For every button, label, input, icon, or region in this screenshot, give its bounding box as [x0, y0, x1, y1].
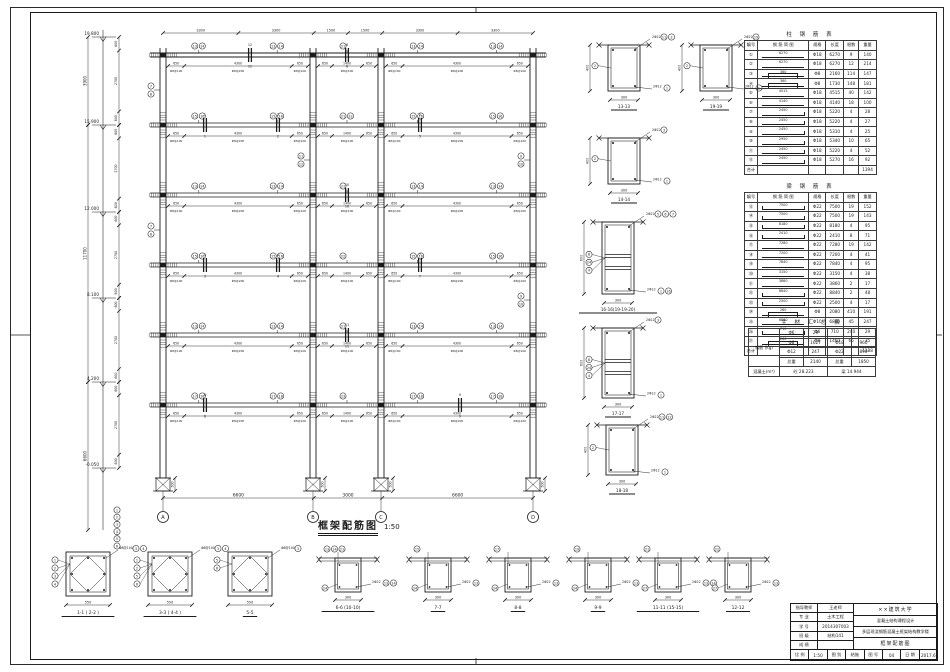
svg-text:5: 5 [657, 212, 659, 216]
svg-text:24: 24 [587, 261, 591, 265]
svg-text:300: 300 [615, 299, 621, 303]
svg-text:2: 2 [594, 157, 596, 161]
svg-text:27: 27 [713, 586, 717, 590]
svg-text:21: 21 [341, 114, 345, 118]
title-block-cell: 2017.6 [920, 650, 937, 660]
svg-text:4: 4 [142, 547, 144, 551]
svg-text:17: 17 [411, 394, 415, 398]
svg-text:5: 5 [136, 574, 138, 578]
svg-text:2Φ22: 2Φ22 [646, 212, 655, 216]
svg-text:13: 13 [325, 547, 329, 551]
title-block-bottom-row: 比 例1:50图 别结施图 号04日 期2017.6 [791, 649, 937, 660]
svg-text:11: 11 [345, 345, 349, 349]
svg-text:650: 650 [391, 272, 397, 276]
svg-text:6: 6 [116, 544, 118, 548]
svg-text:300: 300 [595, 596, 601, 600]
svg-text:Φ8@100: Φ8@100 [341, 209, 354, 213]
svg-text:Φ8@100: Φ8@100 [388, 349, 401, 353]
svg-text:4300: 4300 [453, 342, 461, 346]
svg-text:Φ8@100: Φ8@100 [513, 209, 526, 213]
rebar-row: ③360Φ82160114147 [745, 69, 877, 79]
svg-text:2Φ12: 2Φ12 [647, 392, 656, 396]
school-name: ××建筑大学 [854, 604, 937, 616]
svg-text:14: 14 [279, 324, 283, 328]
svg-text:23: 23 [341, 394, 345, 398]
svg-text:2: 2 [594, 64, 596, 68]
svg-text:Φ8@200: Φ8@200 [232, 279, 245, 283]
svg-text:4300: 4300 [234, 202, 242, 206]
svg-text:600: 600 [114, 301, 118, 307]
svg-text:1-1 ( 2-2 ): 1-1 ( 2-2 ) [77, 610, 99, 616]
svg-text:7: 7 [419, 253, 421, 257]
svg-text:Φ8@200: Φ8@200 [451, 139, 464, 143]
svg-text:8-8: 8-8 [514, 605, 521, 611]
svg-text:650: 650 [297, 202, 303, 206]
title-block-row: 专 业土木工程 [791, 613, 853, 622]
svg-text:650: 650 [366, 272, 372, 276]
svg-text:-0.050: -0.050 [86, 462, 100, 467]
rebar-row: ⑲7840Φ227840495 [745, 260, 877, 270]
rebar-row: ⑭7500Φ22750019143 [745, 212, 877, 222]
rebar-row: ㉔260Φ82080410191 [745, 308, 877, 318]
svg-text:Φ8@100: Φ8@100 [513, 279, 526, 283]
svg-text:13: 13 [554, 581, 558, 585]
rebar-row: ⑤4515Φ18451540142 [745, 88, 877, 98]
column-rebar-table: 柱 钢 筋 表编号钢 筋 简 图规格长度根数重量①6270Φ1862709140… [744, 30, 877, 175]
svg-text:600: 600 [114, 458, 118, 464]
svg-text:3: 3 [116, 523, 118, 527]
svg-text:12: 12 [299, 162, 303, 166]
svg-text:Φ8@200: Φ8@200 [232, 139, 245, 143]
svg-text:2: 2 [592, 446, 594, 450]
svg-text:600: 600 [579, 255, 583, 261]
svg-text:8.100: 8.100 [87, 292, 99, 297]
svg-text:Φ8@100: Φ8@100 [201, 546, 215, 550]
concrete-row: 混凝土(m³)砼 28.223梁 14.944 [749, 367, 876, 377]
svg-text:6600: 6600 [233, 493, 244, 499]
drawing-sheet: 500A500B500C500D660030006600330033001500… [0, 0, 950, 672]
svg-text:Φ8@200: Φ8@200 [451, 279, 464, 283]
svg-text:13: 13 [491, 184, 495, 188]
svg-text:16: 16 [279, 254, 283, 258]
svg-text:4300: 4300 [234, 62, 242, 66]
svg-text:9: 9 [459, 415, 461, 419]
svg-text:24: 24 [587, 366, 591, 370]
svg-text:650: 650 [391, 62, 397, 66]
svg-text:650: 650 [391, 342, 397, 346]
svg-text:13: 13 [271, 184, 275, 188]
svg-text:13: 13 [271, 44, 275, 48]
rebar-row: ㉑3860Φ223860217 [745, 279, 877, 289]
svg-text:2700: 2700 [114, 164, 118, 172]
svg-text:7-7: 7-7 [434, 605, 441, 611]
svg-text:400: 400 [585, 65, 589, 71]
rebar-row: ⑥4140Φ18414018100 [745, 98, 877, 108]
svg-text:Φ8@200: Φ8@200 [232, 419, 245, 423]
svg-text:15: 15 [193, 254, 197, 258]
svg-text:Φ8@100: Φ8@100 [513, 139, 526, 143]
svg-text:300: 300 [621, 189, 627, 193]
svg-text:16-16(19-19-20): 16-16(19-19-20) [601, 307, 636, 312]
svg-text:2Φ22: 2Φ22 [542, 580, 551, 584]
svg-text:6600: 6600 [452, 493, 463, 499]
svg-text:6: 6 [346, 43, 348, 47]
svg-text:2700: 2700 [114, 251, 118, 259]
svg-text:1: 1 [204, 135, 206, 139]
svg-text:12-12: 12-12 [732, 605, 745, 611]
svg-text:3-3 ( 4-4 ): 3-3 ( 4-4 ) [159, 610, 181, 616]
svg-text:1: 1 [204, 113, 206, 117]
drawing-title-text: 框架配筋图 [318, 517, 378, 536]
svg-text:9: 9 [520, 294, 522, 298]
svg-text:4300: 4300 [453, 272, 461, 276]
svg-text:15.900: 15.900 [84, 119, 99, 124]
svg-text:650: 650 [366, 62, 372, 66]
svg-text:2: 2 [277, 113, 279, 117]
svg-text:14: 14 [498, 324, 502, 328]
svg-text:1400: 1400 [343, 272, 351, 276]
svg-text:Φ8@100: Φ8@100 [341, 419, 354, 423]
svg-text:17-17: 17-17 [612, 411, 625, 416]
svg-text:Φ8@200: Φ8@200 [451, 349, 464, 353]
rebar-row: ⑫2450Φ1852701692 [745, 156, 877, 166]
svg-text:650: 650 [366, 202, 372, 206]
table-title: 柱 钢 筋 表 [744, 30, 877, 38]
svg-text:Φ8@200: Φ8@200 [451, 419, 464, 423]
svg-text:14: 14 [391, 581, 395, 585]
svg-text:13: 13 [193, 44, 197, 48]
svg-text:300: 300 [515, 596, 521, 600]
svg-text:A: A [161, 515, 165, 521]
svg-text:2Φ12: 2Φ12 [651, 469, 660, 473]
svg-text:650: 650 [517, 272, 523, 276]
svg-text:7: 7 [150, 84, 152, 88]
svg-text:650: 650 [297, 412, 303, 416]
svg-text:11: 11 [345, 323, 349, 327]
summary-row: 钢筋 (kg)Φ629 [749, 329, 876, 339]
svg-text:18: 18 [279, 394, 283, 398]
svg-text:3300: 3300 [272, 29, 281, 33]
svg-text:1: 1 [660, 393, 662, 397]
svg-text:8: 8 [588, 253, 590, 257]
svg-text:5: 5 [216, 558, 218, 562]
svg-text:4300: 4300 [453, 202, 461, 206]
svg-text:15: 15 [411, 254, 415, 258]
svg-text:6600: 6600 [82, 450, 87, 461]
rebar-row: ⑱7200Φ227200441 [745, 250, 877, 260]
svg-text:16: 16 [498, 254, 502, 258]
svg-text:10: 10 [519, 302, 523, 306]
svg-text:Φ8@100: Φ8@100 [388, 139, 401, 143]
svg-text:650: 650 [322, 412, 328, 416]
svg-text:14-14: 14-14 [618, 197, 631, 202]
svg-text:650: 650 [517, 62, 523, 66]
svg-text:650: 650 [173, 272, 179, 276]
svg-text:15: 15 [193, 114, 197, 118]
svg-text:13: 13 [634, 581, 638, 585]
course-name: 混凝土结构课程设计 [854, 616, 937, 627]
rebar-row: ⑩2950Φ1853401065 [745, 136, 877, 146]
svg-text:19.800: 19.800 [84, 31, 99, 36]
svg-text:11: 11 [299, 154, 303, 158]
svg-text:600: 600 [114, 216, 118, 222]
svg-text:Φ8@100: Φ8@100 [294, 349, 307, 353]
svg-text:650: 650 [322, 62, 328, 66]
svg-text:2700: 2700 [114, 336, 118, 344]
svg-text:650: 650 [322, 132, 328, 136]
svg-text:650: 650 [366, 342, 372, 346]
svg-text:650: 650 [391, 132, 397, 136]
svg-text:14: 14 [279, 44, 283, 48]
svg-text:8: 8 [204, 393, 206, 397]
svg-text:7: 7 [672, 212, 674, 216]
title-block-cell: 结施 [846, 650, 864, 660]
svg-text:2Φ12: 2Φ12 [647, 288, 656, 292]
svg-text:650: 650 [173, 132, 179, 136]
svg-text:4300: 4300 [453, 62, 461, 66]
svg-text:16: 16 [498, 114, 502, 118]
svg-text:12: 12 [248, 65, 252, 69]
svg-text:10: 10 [519, 162, 523, 166]
svg-text:3: 3 [217, 547, 219, 551]
svg-text:10: 10 [345, 205, 349, 209]
rebar-row: ⑳3150Φ223150438 [745, 269, 877, 279]
svg-text:Φ8@100: Φ8@100 [170, 139, 183, 143]
svg-text:2Φ12: 2Φ12 [653, 85, 662, 89]
svg-text:2Φ22: 2Φ22 [646, 318, 655, 322]
svg-text:2Φ22: 2Φ22 [652, 128, 661, 132]
svg-text:3900: 3900 [82, 75, 87, 86]
svg-text:2: 2 [116, 516, 118, 520]
svg-text:Φ8@200: Φ8@200 [451, 69, 464, 73]
svg-text:21: 21 [341, 44, 345, 48]
svg-text:17: 17 [193, 394, 197, 398]
svg-text:11: 11 [662, 35, 666, 39]
svg-text:8: 8 [150, 232, 152, 236]
svg-text:7: 7 [150, 224, 152, 228]
svg-text:14: 14 [498, 44, 502, 48]
svg-text:19: 19 [575, 547, 579, 551]
drawing-scale: 1:50 [384, 523, 400, 531]
svg-text:Φ8@100: Φ8@100 [170, 69, 183, 73]
svg-text:2Φ22: 2Φ22 [692, 580, 701, 584]
svg-text:2Φ22: 2Φ22 [622, 580, 631, 584]
svg-text:550: 550 [85, 601, 91, 605]
svg-text:6: 6 [136, 582, 138, 586]
title-block: 指导教师王老师专 业土木工程学 号2014307003班 级结构141成 绩 ×… [790, 603, 938, 661]
svg-text:14: 14 [332, 547, 336, 551]
svg-text:400: 400 [583, 447, 587, 453]
svg-text:Φ8@100: Φ8@100 [170, 209, 183, 213]
title-block-row: 班 级结构141 [791, 632, 853, 641]
svg-text:6-6 (10-10): 6-6 (10-10) [336, 605, 361, 611]
svg-text:1: 1 [116, 508, 118, 512]
svg-text:550: 550 [167, 601, 173, 605]
svg-text:27: 27 [643, 586, 647, 590]
svg-text:300: 300 [435, 596, 441, 600]
svg-text:650: 650 [322, 342, 328, 346]
svg-text:650: 650 [517, 202, 523, 206]
svg-text:24: 24 [323, 586, 327, 590]
svg-text:24: 24 [493, 586, 497, 590]
svg-text:650: 650 [297, 342, 303, 346]
svg-text:Φ8@100: Φ8@100 [294, 209, 307, 213]
title-block-cell: 04 [883, 650, 901, 660]
svg-text:Φ8@100: Φ8@100 [170, 349, 183, 353]
title-block-row: 学 号2014307003 [791, 622, 853, 631]
svg-text:4: 4 [588, 374, 590, 378]
rebar-row: ⑮8180Φ228180495 [745, 221, 877, 231]
svg-text:Φ8@100: Φ8@100 [119, 546, 133, 550]
svg-text:1500: 1500 [327, 29, 336, 33]
svg-text:650: 650 [173, 342, 179, 346]
svg-text:18: 18 [498, 394, 502, 398]
svg-text:17: 17 [495, 547, 499, 551]
svg-text:3300: 3300 [416, 29, 425, 33]
svg-text:Φ8@100: Φ8@100 [513, 419, 526, 423]
svg-text:2Φ22: 2Φ22 [650, 415, 659, 419]
svg-text:2: 2 [686, 64, 688, 68]
svg-text:6: 6 [216, 566, 218, 570]
svg-text:600: 600 [114, 386, 118, 392]
svg-text:3300: 3300 [196, 29, 205, 33]
svg-text:600: 600 [114, 202, 118, 208]
svg-text:14: 14 [419, 184, 423, 188]
svg-text:650: 650 [173, 62, 179, 66]
svg-text:13: 13 [271, 324, 275, 328]
svg-text:500: 500 [320, 481, 324, 487]
svg-text:9: 9 [520, 154, 522, 158]
svg-text:13: 13 [491, 44, 495, 48]
svg-text:650: 650 [297, 62, 303, 66]
svg-text:14: 14 [200, 324, 204, 328]
svg-text:2Φ12: 2Φ12 [653, 178, 662, 182]
svg-text:6: 6 [346, 65, 348, 69]
svg-text:550: 550 [247, 601, 253, 605]
table-header-row: 编号钢 筋 简 图规格长度根数重量 [745, 193, 877, 203]
svg-text:300: 300 [345, 596, 351, 600]
svg-text:9: 9 [459, 393, 461, 397]
summary-title: 主 材 汇 总 表 [748, 318, 876, 326]
svg-text:Φ8@100: Φ8@100 [513, 69, 526, 73]
rebar-row: ⑨2450Φ185310425 [745, 127, 877, 137]
svg-text:8: 8 [150, 92, 152, 96]
svg-text:Φ8@100: Φ8@100 [388, 69, 401, 73]
svg-text:11: 11 [660, 415, 664, 419]
svg-text:1: 1 [666, 86, 668, 90]
rebar-row: ⑬7500Φ22750019152 [745, 202, 877, 212]
svg-text:600: 600 [114, 288, 118, 294]
svg-text:1: 1 [666, 179, 668, 183]
svg-text:Φ8@100: Φ8@100 [294, 279, 307, 283]
svg-text:4300: 4300 [234, 132, 242, 136]
svg-text:15: 15 [491, 114, 495, 118]
svg-text:3: 3 [670, 35, 672, 39]
svg-text:1: 1 [660, 289, 662, 293]
svg-text:9-9: 9-9 [594, 605, 601, 611]
svg-text:2Φ22: 2Φ22 [762, 580, 771, 584]
svg-text:14: 14 [419, 324, 423, 328]
svg-text:500: 500 [388, 481, 392, 487]
svg-text:14: 14 [498, 184, 502, 188]
svg-text:300: 300 [621, 96, 627, 100]
svg-text:650: 650 [391, 202, 397, 206]
svg-text:2700: 2700 [114, 421, 118, 429]
svg-text:1: 1 [664, 470, 666, 474]
svg-text:3300: 3300 [491, 29, 500, 33]
svg-text:5: 5 [419, 113, 421, 117]
rebar-row: ㉒8840Φ228840248 [745, 288, 877, 298]
rebar-row: ④360Φ81730148181 [745, 79, 877, 89]
svg-text:650: 650 [297, 132, 303, 136]
svg-text:16: 16 [666, 289, 670, 293]
svg-text:4300: 4300 [234, 272, 242, 276]
svg-text:Φ8@100: Φ8@100 [170, 279, 183, 283]
drawing-name: 框架配筋图 [854, 638, 937, 649]
svg-text:13: 13 [193, 324, 197, 328]
title-block-cell: 1:50 [809, 650, 827, 660]
rebar-row: ⑦2450Φ185220428 [745, 108, 877, 118]
svg-text:2: 2 [54, 566, 56, 570]
svg-text:24: 24 [573, 586, 577, 590]
svg-text:300: 300 [665, 596, 671, 600]
svg-text:Φ8@100: Φ8@100 [294, 69, 307, 73]
svg-text:300: 300 [713, 96, 719, 100]
svg-text:Φ8@100: Φ8@100 [294, 139, 307, 143]
svg-text:Φ8@100: Φ8@100 [388, 419, 401, 423]
svg-text:Φ8@200: Φ8@200 [451, 209, 464, 213]
table-total-row: 合计1394 [745, 165, 877, 175]
svg-text:500: 500 [540, 481, 544, 487]
svg-text:13: 13 [491, 324, 495, 328]
svg-text:600: 600 [579, 360, 583, 366]
svg-text:650: 650 [322, 202, 328, 206]
svg-text:15: 15 [271, 114, 275, 118]
svg-text:Φ8@100: Φ8@100 [341, 139, 354, 143]
svg-text:13: 13 [774, 581, 778, 585]
svg-text:3: 3 [297, 547, 299, 551]
svg-text:14: 14 [279, 184, 283, 188]
svg-text:600: 600 [114, 115, 118, 121]
svg-text:600: 600 [114, 129, 118, 135]
svg-text:3: 3 [135, 547, 137, 551]
svg-text:13: 13 [474, 581, 478, 585]
svg-text:400: 400 [585, 158, 589, 164]
svg-text:Φ8@100: Φ8@100 [281, 546, 295, 550]
title-block-cell: 日 期 [901, 650, 919, 660]
svg-text:13: 13 [384, 581, 388, 585]
svg-text:8: 8 [588, 358, 590, 362]
svg-text:650: 650 [366, 132, 372, 136]
svg-text:Φ8@200: Φ8@200 [232, 69, 245, 73]
svg-text:14: 14 [200, 184, 204, 188]
svg-text:18-18: 18-18 [616, 488, 629, 493]
svg-text:6: 6 [664, 212, 666, 216]
svg-text:3000: 3000 [342, 493, 353, 499]
svg-text:300: 300 [615, 403, 621, 407]
project-name: 多层现浇钢筋混凝土框架结构教学楼 [854, 627, 937, 638]
svg-text:22: 22 [348, 114, 352, 118]
rebar-total-label: 钢筋 (kg) [749, 329, 780, 367]
svg-text:3: 3 [663, 128, 665, 132]
title-block-info: 指导教师王老师专 业土木工程学 号2014307003班 级结构141成 绩 [791, 604, 854, 649]
rebar-row: ⑧2450Φ185220427 [745, 117, 877, 127]
svg-text:4: 4 [54, 582, 56, 586]
svg-text:3: 3 [204, 253, 206, 257]
svg-text:2Φ22: 2Φ22 [372, 580, 381, 584]
svg-text:12: 12 [667, 415, 671, 419]
title-block-cell: 图 别 [828, 650, 846, 660]
